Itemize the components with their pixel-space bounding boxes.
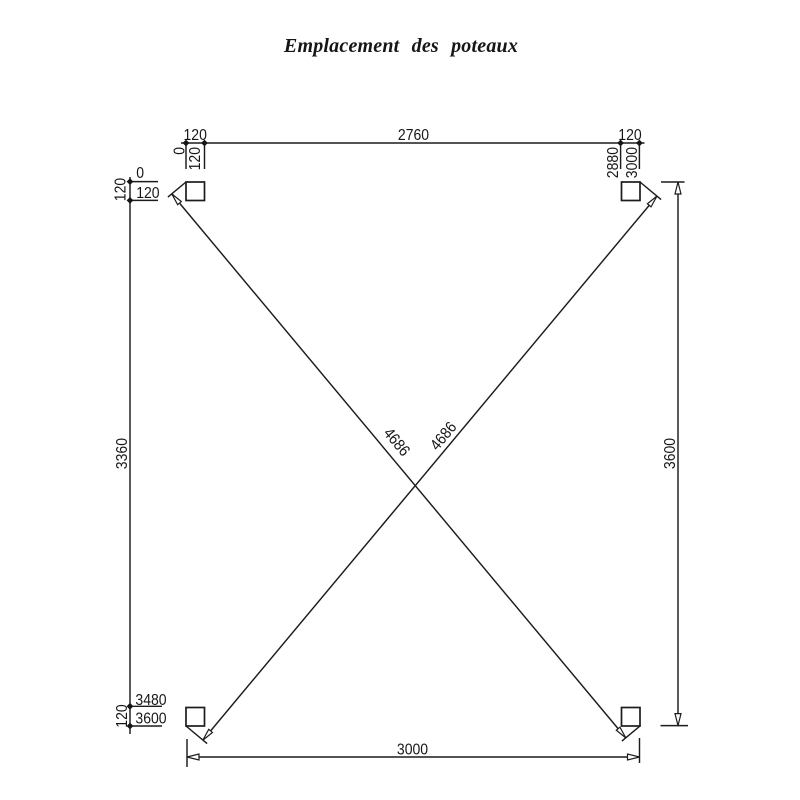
svg-text:120: 120: [187, 147, 204, 170]
svg-text:120: 120: [618, 127, 641, 144]
svg-text:0: 0: [136, 165, 144, 182]
svg-text:3360: 3360: [114, 438, 131, 469]
svg-text:2880: 2880: [605, 147, 622, 178]
svg-text:3000: 3000: [624, 147, 641, 178]
svg-text:3480: 3480: [135, 692, 166, 709]
svg-text:Emplacement des poteaux: Emplacement des poteaux: [283, 35, 518, 57]
svg-text:120: 120: [113, 178, 130, 201]
svg-text:3000: 3000: [397, 742, 428, 759]
svg-text:3600: 3600: [135, 710, 166, 727]
svg-text:0: 0: [172, 147, 189, 155]
svg-text:3600: 3600: [662, 438, 679, 469]
svg-text:120: 120: [114, 704, 131, 727]
svg-text:120: 120: [136, 185, 159, 202]
svg-text:2760: 2760: [398, 127, 429, 144]
svg-text:120: 120: [184, 127, 207, 144]
